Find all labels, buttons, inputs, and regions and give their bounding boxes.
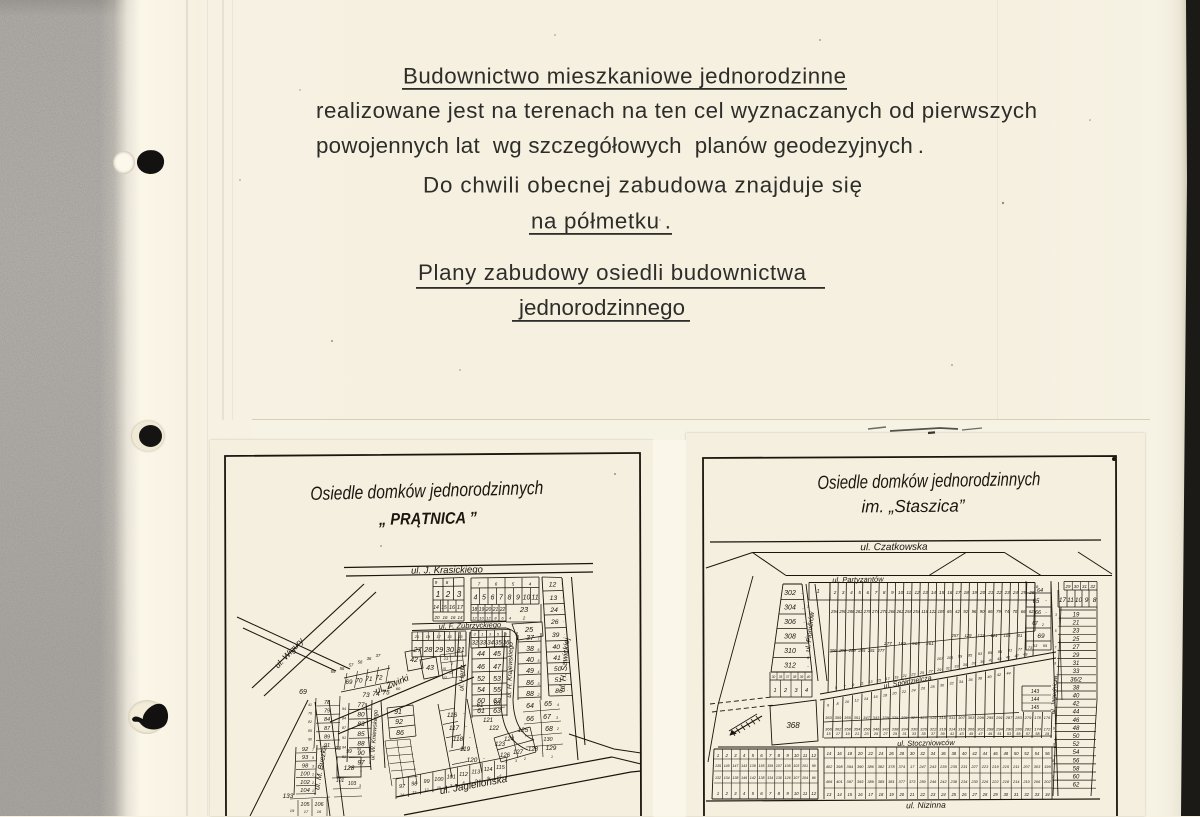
svg-text:70: 70	[1013, 609, 1018, 614]
svg-text:25: 25	[1072, 637, 1080, 643]
svg-text:11: 11	[803, 753, 808, 758]
svg-text:27: 27	[927, 669, 933, 673]
svg-text:6: 6	[499, 774, 501, 778]
svg-text:121: 121	[991, 633, 998, 638]
svg-text:48: 48	[1003, 751, 1008, 756]
svg-text:3: 3	[1055, 613, 1057, 617]
svg-text:ul. F. Zubrzyckiego: ul. F. Zubrzyckiego	[439, 620, 502, 631]
svg-text:15: 15	[877, 679, 882, 683]
svg-text:19: 19	[1073, 613, 1080, 619]
svg-text:17: 17	[910, 764, 915, 769]
svg-text:55: 55	[1043, 643, 1048, 648]
svg-text:311: 311	[949, 715, 955, 720]
svg-text:1: 1	[360, 769, 362, 773]
svg-text:374: 374	[899, 764, 906, 769]
svg-text:49: 49	[988, 732, 993, 736]
svg-text:266: 266	[887, 609, 896, 614]
svg-text:299: 299	[976, 715, 984, 720]
svg-text:92: 92	[395, 719, 403, 726]
svg-text:93: 93	[302, 755, 309, 761]
svg-text:258: 258	[904, 609, 913, 614]
svg-text:64: 64	[1037, 588, 1043, 594]
svg-text:35: 35	[921, 732, 926, 736]
svg-text:91: 91	[394, 709, 402, 716]
svg-text:103: 103	[947, 656, 954, 660]
svg-text:2: 2	[556, 727, 559, 731]
svg-text:24: 24	[940, 792, 946, 797]
svg-text:32: 32	[1090, 584, 1095, 589]
svg-text:7: 7	[1052, 775, 1054, 779]
svg-text:20: 20	[433, 615, 440, 620]
svg-text:176: 176	[1044, 715, 1051, 720]
svg-text:1: 1	[717, 791, 720, 796]
svg-text:315: 315	[939, 715, 946, 720]
svg-text:84: 84	[342, 717, 346, 721]
svg-text:2: 2	[724, 753, 728, 758]
svg-text:20: 20	[891, 692, 897, 696]
svg-text:~: ~	[803, 621, 805, 625]
svg-text:86: 86	[988, 609, 993, 614]
svg-text:28: 28	[929, 685, 935, 689]
svg-text:2: 2	[311, 781, 314, 785]
svg-text:118: 118	[921, 609, 928, 614]
svg-text:38: 38	[978, 677, 983, 681]
svg-text:306: 306	[968, 727, 975, 732]
svg-text:139: 139	[750, 764, 756, 768]
svg-text:ul. Stoczniowców: ul. Stoczniowców	[897, 738, 955, 748]
svg-text:16: 16	[450, 615, 456, 620]
svg-text:9: 9	[852, 683, 855, 687]
svg-text:381: 381	[888, 779, 895, 784]
svg-text:20: 20	[857, 751, 863, 756]
svg-text:86: 86	[396, 730, 404, 737]
svg-text:26: 26	[550, 619, 559, 626]
svg-text:26: 26	[961, 792, 967, 797]
svg-text:172: 172	[1044, 727, 1051, 732]
svg-text:261: 261	[925, 641, 934, 646]
svg-text:50: 50	[554, 666, 562, 673]
svg-text:243: 243	[929, 764, 937, 769]
svg-text:18: 18	[879, 792, 884, 797]
svg-text:3: 3	[515, 759, 517, 763]
svg-text:90: 90	[980, 609, 985, 614]
svg-text:65: 65	[1033, 599, 1040, 605]
svg-text:51: 51	[997, 732, 1001, 736]
svg-text:342: 342	[882, 727, 889, 732]
svg-text:385: 385	[878, 779, 885, 784]
svg-text:17: 17	[868, 792, 873, 797]
svg-text:278: 278	[863, 609, 872, 614]
svg-text:49: 49	[526, 668, 534, 675]
svg-text:32: 32	[949, 682, 954, 686]
svg-text:21: 21	[902, 674, 907, 678]
svg-text:13: 13	[868, 680, 873, 684]
svg-text:281: 281	[867, 648, 875, 653]
svg-text:63: 63	[493, 708, 501, 715]
svg-text:38: 38	[793, 675, 797, 679]
svg-text:36: 36	[941, 751, 946, 756]
svg-text:27: 27	[1072, 645, 1080, 651]
svg-text:302: 302	[977, 727, 984, 732]
svg-text:21: 21	[854, 732, 859, 736]
svg-text:80: 80	[357, 712, 365, 719]
svg-text:6: 6	[538, 648, 540, 652]
svg-text:114: 114	[484, 767, 493, 773]
svg-text:294: 294	[830, 609, 839, 614]
svg-text:~: ~	[806, 650, 808, 654]
svg-text:66: 66	[526, 716, 534, 723]
svg-text:36: 36	[503, 641, 510, 647]
svg-text:104: 104	[300, 788, 310, 794]
svg-text:169: 169	[898, 641, 906, 646]
svg-text:17: 17	[885, 677, 890, 681]
svg-text:18: 18	[472, 607, 478, 613]
svg-text:67: 67	[1032, 621, 1038, 627]
svg-text:103: 103	[793, 764, 799, 768]
svg-text:ul. J. Krasickiego: ul. J. Krasickiego	[411, 564, 483, 576]
svg-text:23: 23	[930, 792, 936, 797]
svg-text:79: 79	[324, 709, 330, 715]
svg-text:97: 97	[399, 784, 406, 790]
svg-text:24: 24	[1012, 590, 1019, 595]
svg-text:83: 83	[357, 721, 365, 728]
svg-text:285: 285	[857, 648, 866, 653]
svg-text:289: 289	[848, 648, 857, 653]
svg-text:82: 82	[308, 720, 312, 724]
svg-text:104: 104	[802, 776, 808, 780]
svg-text:48: 48	[1073, 726, 1080, 732]
svg-text:295: 295	[986, 715, 994, 720]
svg-text:279: 279	[1024, 715, 1032, 720]
svg-text:9: 9	[312, 756, 314, 760]
svg-text:40: 40	[553, 644, 561, 651]
svg-text:227: 227	[970, 764, 978, 769]
svg-text:66: 66	[1035, 610, 1042, 616]
svg-text:33: 33	[1035, 792, 1040, 797]
svg-text:52: 52	[477, 676, 485, 683]
svg-text:270: 270	[879, 609, 888, 614]
svg-text:52: 52	[1024, 751, 1029, 756]
svg-text:21: 21	[987, 590, 994, 595]
svg-text:55: 55	[493, 687, 501, 694]
svg-text:4: 4	[743, 791, 746, 796]
svg-text:10: 10	[523, 595, 531, 602]
svg-text:9: 9	[516, 595, 520, 602]
svg-text:115: 115	[496, 765, 506, 771]
svg-text:5: 5	[835, 686, 838, 690]
svg-text:42: 42	[410, 657, 418, 664]
svg-text:5: 5	[858, 590, 861, 595]
svg-text:3: 3	[473, 633, 476, 637]
svg-text:85: 85	[308, 729, 312, 733]
svg-text:306: 306	[784, 619, 796, 626]
svg-text:66: 66	[812, 776, 816, 780]
svg-text:98: 98	[302, 763, 309, 769]
svg-text:2: 2	[522, 616, 526, 621]
svg-text:11: 11	[906, 590, 911, 595]
svg-text:250: 250	[918, 779, 926, 784]
svg-text:16: 16	[873, 695, 878, 699]
svg-text:33: 33	[954, 665, 959, 669]
svg-text:70: 70	[356, 678, 363, 685]
svg-text:1: 1	[312, 773, 314, 777]
svg-text:174: 174	[1034, 727, 1041, 732]
svg-text:64: 64	[526, 703, 534, 710]
svg-text:354: 354	[854, 727, 861, 732]
svg-text:54: 54	[1073, 750, 1080, 756]
svg-text:29: 29	[992, 792, 998, 797]
svg-text:92: 92	[963, 609, 968, 614]
svg-text:15: 15	[441, 605, 447, 611]
svg-text:307: 307	[958, 715, 965, 720]
svg-text:2: 2	[783, 688, 787, 694]
svg-text:2: 2	[724, 791, 728, 796]
svg-text:22: 22	[867, 751, 873, 756]
svg-text:ul. M. Buczka: ul. M. Buczka	[312, 745, 329, 791]
svg-text:234: 234	[960, 779, 968, 784]
svg-text:254: 254	[912, 609, 921, 614]
svg-text:7: 7	[769, 753, 772, 758]
svg-text:286: 286	[1014, 727, 1022, 732]
svg-text:14: 14	[837, 792, 842, 797]
svg-text:8: 8	[463, 781, 465, 785]
svg-text:2: 2	[833, 590, 837, 595]
svg-text:36/2: 36/2	[1070, 677, 1082, 683]
svg-text:319: 319	[930, 715, 937, 720]
svg-text:74: 74	[1004, 609, 1009, 614]
svg-text:20: 20	[898, 792, 904, 797]
svg-text:10: 10	[479, 616, 484, 621]
svg-text:15: 15	[847, 792, 852, 797]
svg-text:84: 84	[324, 717, 330, 723]
svg-text:322: 322	[930, 727, 937, 732]
svg-text:11: 11	[803, 791, 808, 796]
svg-text:45: 45	[493, 651, 501, 658]
svg-text:94: 94	[357, 747, 361, 751]
svg-text:223: 223	[981, 764, 989, 769]
svg-text:14: 14	[400, 793, 404, 797]
svg-text:67: 67	[543, 714, 552, 721]
svg-text:368: 368	[786, 721, 800, 730]
svg-text:58: 58	[358, 659, 363, 664]
svg-text:14: 14	[457, 615, 463, 620]
svg-text:21: 21	[492, 607, 499, 613]
svg-text:86: 86	[526, 680, 534, 687]
svg-text:41: 41	[989, 659, 993, 663]
svg-text:5: 5	[752, 791, 755, 796]
svg-text:298: 298	[986, 727, 994, 732]
svg-text:1: 1	[773, 688, 776, 694]
svg-text:306: 306	[830, 648, 838, 653]
svg-text:230: 230	[970, 779, 978, 784]
svg-text:3: 3	[312, 764, 314, 768]
svg-text:16: 16	[449, 605, 456, 611]
svg-text:30: 30	[446, 645, 455, 654]
svg-text:85: 85	[357, 731, 365, 738]
svg-text:35: 35	[779, 675, 783, 679]
svg-text:62: 62	[1073, 783, 1080, 789]
svg-text:277: 277	[883, 641, 892, 646]
svg-text:17: 17	[436, 634, 441, 639]
svg-text:33: 33	[479, 641, 486, 647]
svg-text:318: 318	[939, 727, 946, 732]
svg-text:117: 117	[449, 725, 460, 732]
svg-text:100: 100	[434, 777, 444, 783]
svg-text:96: 96	[972, 609, 977, 614]
svg-text:346: 346	[873, 727, 880, 732]
svg-text:314: 314	[949, 727, 956, 732]
svg-text:47: 47	[1014, 654, 1019, 658]
svg-text:10: 10	[794, 791, 799, 796]
svg-text:145: 145	[1031, 705, 1040, 711]
svg-text:310: 310	[958, 727, 965, 732]
svg-text:347: 347	[863, 715, 870, 720]
svg-text:ʼ: ʼ	[564, 634, 565, 638]
svg-text:118: 118	[453, 736, 464, 743]
svg-text:99: 99	[346, 749, 352, 755]
svg-text:32: 32	[920, 751, 925, 756]
svg-text:5: 5	[538, 659, 540, 663]
svg-text:43: 43	[959, 732, 964, 736]
svg-text:4: 4	[538, 670, 540, 674]
svg-text:28: 28	[898, 751, 904, 756]
svg-text:14: 14	[864, 697, 868, 701]
svg-text:5: 5	[1054, 694, 1056, 698]
svg-text:16: 16	[837, 751, 842, 756]
svg-text:94: 94	[342, 707, 346, 711]
svg-text:34: 34	[931, 751, 936, 756]
svg-text:30: 30	[772, 675, 776, 679]
svg-text:69: 69	[1037, 633, 1045, 640]
svg-text:38: 38	[526, 646, 534, 653]
svg-text:~: ~	[483, 756, 486, 761]
svg-text:302: 302	[784, 590, 796, 597]
svg-text:138: 138	[732, 776, 738, 780]
svg-text:~: ~	[476, 745, 479, 750]
svg-text:ul. Pionierów: ul. Pionierów	[805, 611, 816, 653]
svg-text:122: 122	[929, 609, 937, 614]
svg-text:13: 13	[444, 656, 449, 661]
svg-text:47: 47	[493, 664, 502, 671]
svg-text:8: 8	[778, 791, 781, 796]
svg-text:27: 27	[882, 732, 888, 736]
svg-text:8: 8	[446, 580, 449, 585]
svg-text:55: 55	[331, 669, 336, 674]
svg-text:965: 965	[912, 641, 920, 646]
svg-text:29: 29	[434, 645, 444, 654]
svg-text:1: 1	[312, 789, 314, 793]
svg-text:102: 102	[300, 780, 310, 786]
svg-text:126: 126	[785, 776, 791, 780]
svg-text:1: 1	[717, 753, 720, 758]
svg-text:7: 7	[769, 791, 772, 796]
svg-text:45: 45	[1006, 656, 1011, 660]
svg-text:74: 74	[372, 691, 380, 698]
svg-text:7: 7	[844, 685, 847, 689]
svg-text:3: 3	[538, 682, 540, 686]
svg-text:65: 65	[544, 701, 552, 708]
svg-text:312: 312	[784, 663, 796, 670]
svg-text:„ PRĄTNICA ”: „ PRĄTNICA ”	[378, 509, 478, 529]
svg-text:12: 12	[811, 753, 816, 758]
svg-text:338: 338	[892, 727, 899, 732]
svg-text:40: 40	[526, 657, 534, 664]
svg-text:4: 4	[850, 590, 853, 595]
svg-text:42: 42	[955, 609, 960, 614]
svg-text:25: 25	[873, 732, 879, 736]
svg-text:36: 36	[968, 678, 973, 682]
svg-text:304: 304	[784, 605, 796, 612]
svg-text:6: 6	[867, 590, 870, 595]
svg-text:35: 35	[495, 641, 502, 647]
svg-text:123: 123	[978, 633, 986, 638]
svg-text:~: ~	[802, 607, 804, 611]
svg-text:146: 146	[741, 776, 747, 780]
svg-text:7: 7	[478, 582, 481, 587]
svg-text:3: 3	[505, 633, 508, 637]
svg-text:27: 27	[971, 792, 977, 797]
svg-text:202: 202	[1043, 779, 1051, 784]
svg-text:17: 17	[457, 605, 464, 611]
svg-text:37: 37	[786, 675, 790, 679]
svg-text:6: 6	[760, 791, 763, 796]
svg-text:56: 56	[1045, 751, 1050, 756]
svg-text:39: 39	[940, 732, 945, 736]
svg-text:303: 303	[968, 715, 975, 720]
svg-text:12: 12	[486, 616, 491, 621]
svg-text:11: 11	[531, 595, 538, 602]
svg-text:42: 42	[1073, 702, 1080, 708]
svg-text:31: 31	[902, 732, 906, 736]
svg-text:ʼ: ʼ	[567, 690, 568, 694]
svg-text:242: 242	[939, 779, 947, 784]
svg-text:351: 351	[854, 715, 861, 720]
svg-text:107: 107	[793, 776, 800, 780]
svg-text:291: 291	[995, 715, 1003, 720]
svg-text:93: 93	[335, 746, 341, 752]
svg-text:31: 31	[1082, 584, 1087, 589]
svg-text:3: 3	[842, 590, 845, 595]
svg-text:56: 56	[1073, 758, 1080, 764]
svg-text:211: 211	[1012, 764, 1019, 769]
svg-text:22: 22	[901, 690, 907, 694]
svg-text:46: 46	[477, 664, 485, 671]
svg-text:9: 9	[1053, 726, 1055, 730]
svg-text:14: 14	[433, 605, 439, 611]
svg-text:1: 1	[481, 633, 483, 637]
svg-text:~: ~	[1045, 610, 1047, 614]
svg-text:44: 44	[1006, 671, 1010, 675]
svg-text:378: 378	[888, 764, 895, 769]
svg-text:310: 310	[784, 648, 796, 655]
svg-text:31: 31	[1073, 661, 1080, 667]
svg-text:134: 134	[767, 776, 773, 780]
svg-text:105: 105	[785, 764, 791, 768]
svg-text:33: 33	[912, 732, 917, 736]
svg-text:19: 19	[479, 607, 485, 613]
svg-text:51: 51	[555, 677, 563, 684]
svg-text:100: 100	[300, 772, 310, 778]
svg-text:3: 3	[359, 784, 361, 788]
svg-text:14: 14	[931, 590, 937, 595]
svg-text:31: 31	[1014, 792, 1019, 797]
svg-text:56: 56	[340, 666, 345, 671]
svg-text:122: 122	[489, 726, 500, 732]
svg-text:38: 38	[951, 751, 956, 756]
svg-text:101: 101	[802, 764, 808, 768]
svg-text:113: 113	[471, 770, 481, 776]
svg-text:235: 235	[950, 764, 958, 769]
